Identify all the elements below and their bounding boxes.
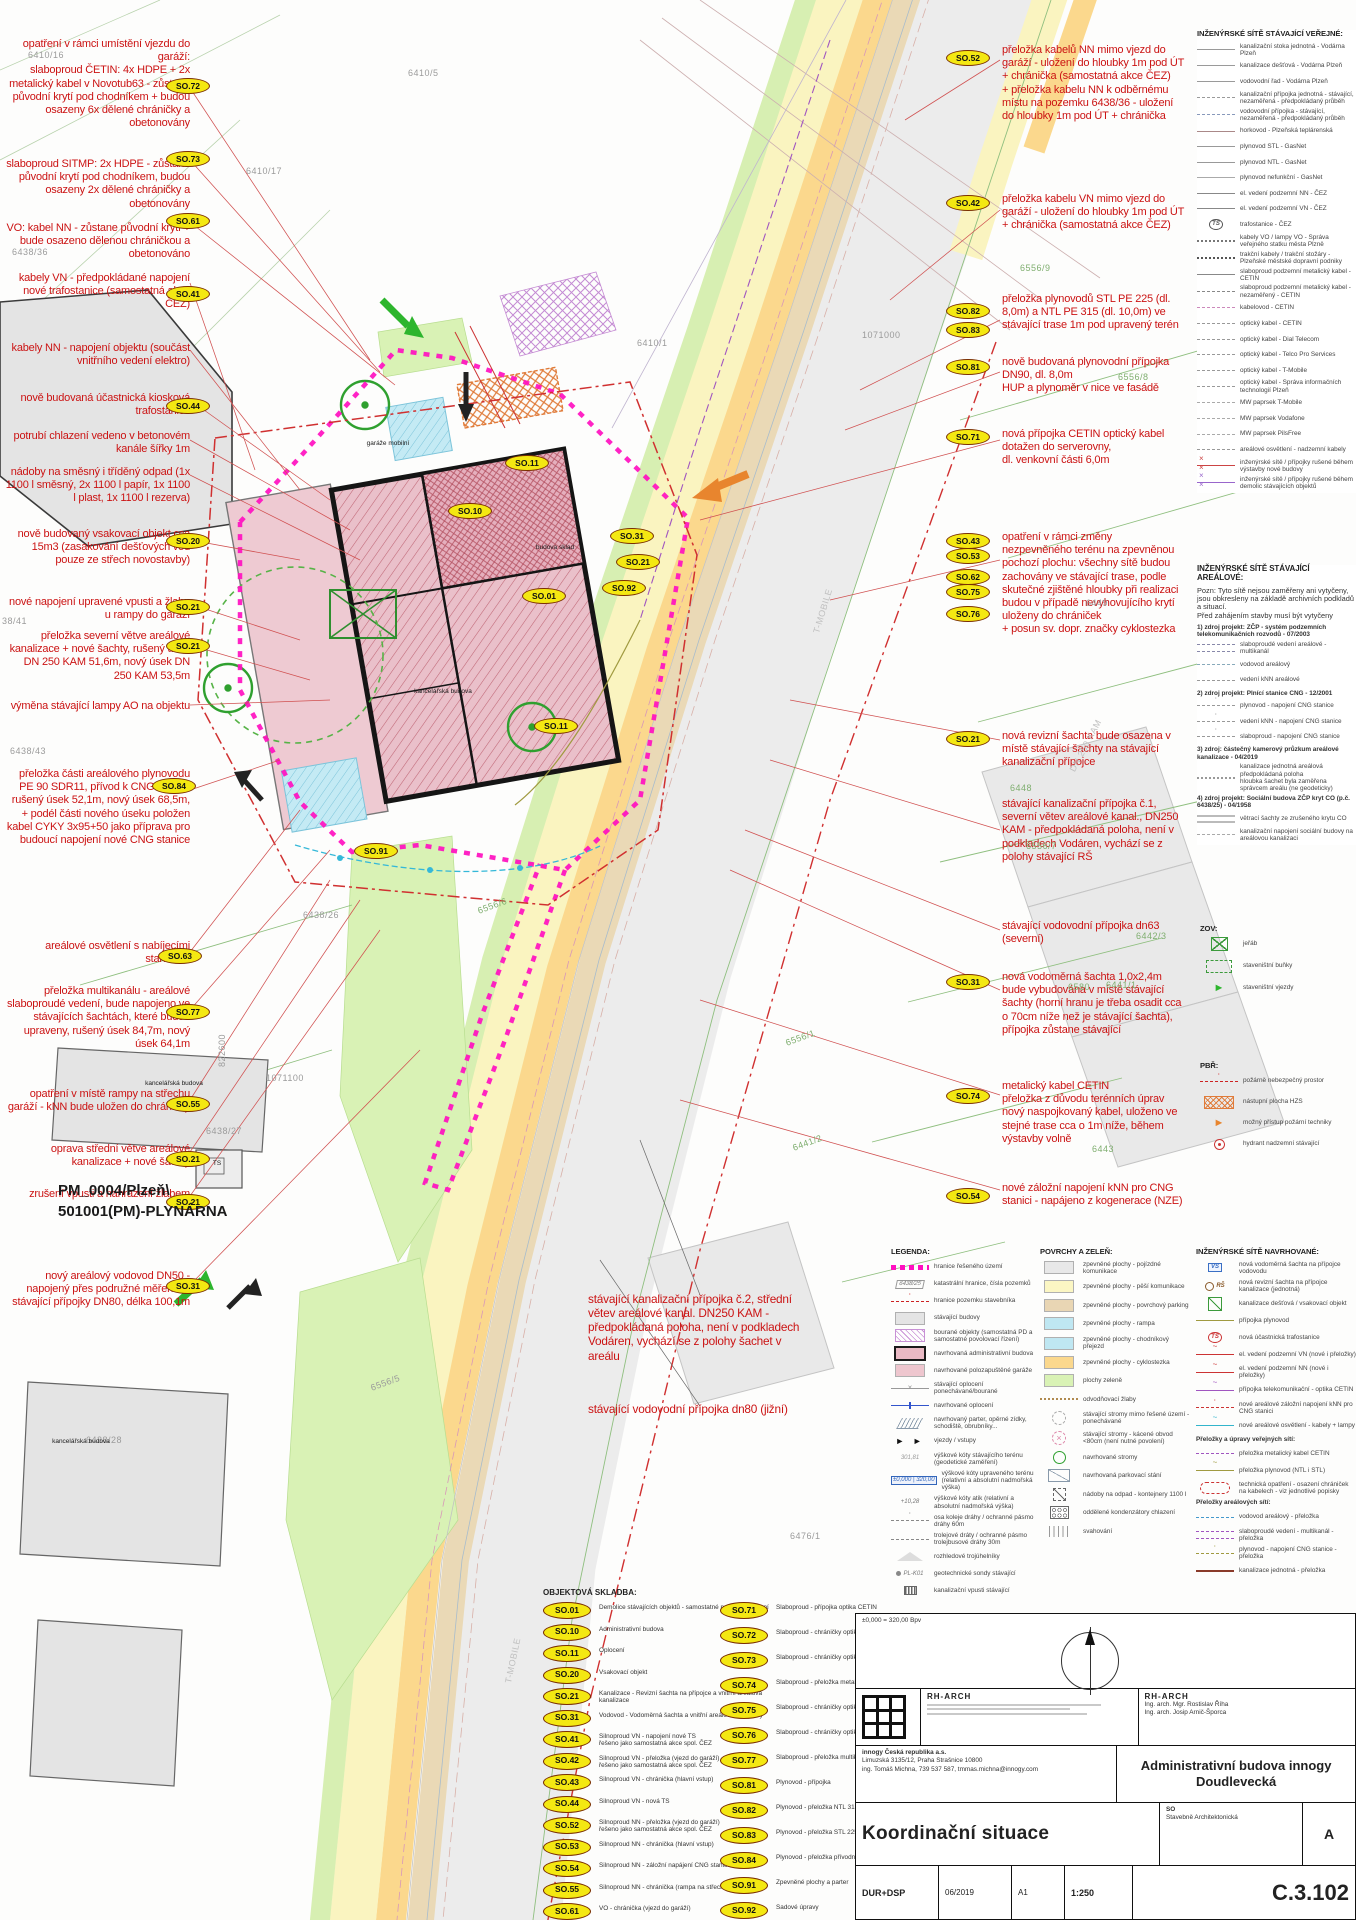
legend-item: navrhované polozapuštěné garáže bbox=[891, 1364, 1036, 1377]
legend-item: plynovod - napojení CNG stanice - přelož… bbox=[1196, 1546, 1356, 1560]
so-label: SO.82 bbox=[720, 1802, 768, 1819]
legend-symbol bbox=[1197, 187, 1235, 200]
scale: 1:250 bbox=[1071, 1888, 1094, 1898]
legend-item: slaboproud podzemní metalický kabel - CE… bbox=[1197, 268, 1356, 282]
legend-symbol bbox=[1196, 1314, 1234, 1327]
legend-item: hranice řešeného území bbox=[891, 1261, 1036, 1274]
legend-item: zpevněné plochy - rampa bbox=[1040, 1317, 1190, 1330]
so-label: SO.74 bbox=[720, 1677, 768, 1694]
legend-item: jeřáb bbox=[1200, 938, 1356, 951]
legend-item: hydrant nadzemní stávající bbox=[1200, 1138, 1356, 1151]
legend-symbol: TS bbox=[1197, 218, 1235, 231]
legend-item: inženýrské sítě / přípojky rušené během … bbox=[1197, 459, 1356, 473]
legend-item: optický kabel - T-Mobile bbox=[1197, 364, 1356, 377]
legend-symbol: VS bbox=[1196, 1261, 1234, 1274]
legend-item: TS nová účastnická trafostanice bbox=[1196, 1331, 1356, 1344]
so-label: SO.77 bbox=[720, 1752, 768, 1769]
legend-symbol bbox=[1197, 140, 1235, 153]
legend-item: optický kabel - Dial Telecom bbox=[1197, 333, 1356, 346]
legend-item: přípojka telekomunikační - optika CETIN bbox=[1196, 1384, 1356, 1397]
legend-symbol bbox=[1197, 380, 1235, 393]
so-label: SO.72 bbox=[720, 1627, 768, 1644]
legend-item: nástupní plocha HZS bbox=[1200, 1096, 1356, 1109]
legend-symbol bbox=[1197, 251, 1235, 264]
legend-item: slaboproud - napojení CNG stanice bbox=[1197, 730, 1356, 743]
legend-symbol bbox=[1040, 1261, 1078, 1274]
legend-item: plynovod - napojení CNG stanice bbox=[1197, 699, 1356, 712]
legend-symbol bbox=[1197, 285, 1235, 298]
legend-item: 301,81 výškové kóty stávajícího terénu (… bbox=[891, 1452, 1036, 1466]
legend-item: MW paprsek Vodafone bbox=[1197, 412, 1356, 425]
legend-item: osa koleje dráhy / ochranné pásmo dráhy … bbox=[891, 1514, 1036, 1528]
legend-symbol bbox=[1197, 828, 1235, 841]
legend-item: nádoby na odpad - kontejnery 1100 l bbox=[1040, 1488, 1190, 1501]
legend-title: INŽENÝRSKÉ SÍTĚ STÁVAJÍCÍ AREÁLOVÉ: bbox=[1197, 565, 1356, 583]
legend-symbol bbox=[1196, 1297, 1234, 1310]
so-label: SO.54 bbox=[543, 1860, 591, 1877]
firm-name-2: RH-ARCH bbox=[1145, 1692, 1350, 1701]
coordination-site-plan-sheet: opatření v rámci umístění vjezdu do gará… bbox=[0, 0, 1356, 1920]
legend-symbol bbox=[891, 1399, 929, 1412]
legend-item: kanalizace jednotná - přeložka bbox=[1196, 1564, 1356, 1577]
legend-symbol bbox=[1197, 674, 1235, 687]
legend-existing-public: INŽENÝRSKÉ SÍTĚ STÁVAJÍCÍ VEŘEJNÉ: kanal… bbox=[1197, 30, 1356, 493]
legend-item: svahování bbox=[1040, 1525, 1190, 1538]
drawing-number: C.3.102 bbox=[1272, 1880, 1349, 1906]
legend-symbol bbox=[891, 1312, 929, 1325]
legend-item: nové areálové osvětlení - kabely + lampy bbox=[1196, 1419, 1356, 1432]
legend-item: navrhované oplocení bbox=[891, 1399, 1036, 1412]
legend-item: vodovodní řad - Vodárna Plzeň bbox=[1197, 75, 1356, 88]
so-label: SO.43 bbox=[543, 1774, 591, 1791]
legend-symbol bbox=[1040, 1412, 1078, 1425]
legend-item: el. vedení podzemní NN (nové i přeložky) bbox=[1196, 1365, 1356, 1379]
objects-title: OBJEKTOVÁ SKLADBA: bbox=[543, 1588, 637, 1597]
legend-item: kanalizace jednotná areálová předpokláda… bbox=[1197, 763, 1356, 792]
legend-note: Pozn: Tyto sítě nejsou zaměřeny ani vyty… bbox=[1197, 587, 1356, 620]
legend-symbol bbox=[891, 1347, 929, 1360]
legend-symbol bbox=[1197, 396, 1235, 409]
legend-symbol bbox=[1197, 771, 1235, 784]
project-name-line1: Administrativní budova innogy bbox=[1123, 1758, 1349, 1774]
legend-symbol bbox=[891, 1514, 929, 1527]
legend-symbol bbox=[1197, 75, 1235, 88]
legend-symbol bbox=[1196, 1464, 1234, 1477]
legend-symbol bbox=[1040, 1488, 1078, 1501]
legend-symbol bbox=[1197, 642, 1235, 655]
investor-address: Limuzská 3135/12, Praha Strašnice 10800 bbox=[862, 1757, 1110, 1765]
legend-item: navrhovaný parter, opěrné zídky, schodiš… bbox=[891, 1416, 1036, 1430]
legend-symbol bbox=[1040, 1506, 1078, 1519]
legend-symbol bbox=[1197, 234, 1235, 247]
legend-item: hranice pozemku stavebníka bbox=[891, 1295, 1036, 1308]
legend-item: 6438/25 katastrální hranice, čísla pozem… bbox=[891, 1278, 1036, 1291]
legend-symbol bbox=[1197, 428, 1235, 441]
legend-symbol bbox=[891, 1295, 929, 1308]
legend-title: ZOV: bbox=[1200, 925, 1356, 934]
legend-item: RŠ nová revizní šachta na přípojce kanal… bbox=[1196, 1279, 1356, 1293]
legend-symbol bbox=[1040, 1374, 1078, 1387]
legend-symbol bbox=[1197, 125, 1235, 138]
north-arrow-icon bbox=[1061, 1632, 1119, 1690]
so-label: SO.53 bbox=[543, 1839, 591, 1856]
legend-item: navrhovaná parkovací stání bbox=[1040, 1469, 1190, 1482]
so-label: SO.73 bbox=[720, 1652, 768, 1669]
legend-item: +10,28 výškové kóty atik (relativní a ab… bbox=[891, 1495, 1036, 1509]
legend-symbol bbox=[1197, 812, 1235, 825]
legend-existing-area: INŽENÝRSKÉ SÍTĚ STÁVAJÍCÍ AREÁLOVÉ: Pozn… bbox=[1197, 565, 1356, 845]
date: 06/2019 bbox=[945, 1888, 974, 1897]
legend-item: vedení kNN areálové bbox=[1197, 674, 1356, 687]
legend-item: slaboproudé vedení areálové - multikanál bbox=[1197, 641, 1356, 655]
legend-symbol bbox=[1197, 364, 1235, 377]
legend-item: MW paprsek T-Mobile bbox=[1197, 396, 1356, 409]
so-label: SO.61 bbox=[543, 1903, 591, 1920]
legend-item: plynovod nefunkční - GasNet bbox=[1197, 171, 1356, 184]
legend-item: rozhledové trojúhelníky bbox=[891, 1550, 1036, 1563]
legend-symbol bbox=[1196, 1564, 1234, 1577]
legend-item: kanalizační přípojka jednotná - stávajíc… bbox=[1197, 91, 1356, 105]
legend-item: kabely VO / lampy VO - Správa veřejného … bbox=[1197, 234, 1356, 248]
legend-symbol bbox=[1197, 59, 1235, 72]
legend-symbol bbox=[1200, 982, 1238, 995]
legend-symbol bbox=[1040, 1469, 1078, 1482]
so-label: SO.44 bbox=[543, 1796, 591, 1813]
legend-item: kanalizační vpusti stávající bbox=[891, 1584, 1036, 1597]
legend-item: el. vedení podzemní VN (nové i přeložky) bbox=[1196, 1348, 1356, 1361]
so-label: SO.20 bbox=[543, 1667, 591, 1684]
legend-item: přeložka metalický kabel CETIN bbox=[1196, 1447, 1356, 1460]
drawing-title: Koordinační situace bbox=[862, 1823, 1049, 1845]
part-code: SO bbox=[1166, 1806, 1296, 1814]
legend-item: 1) zdroj projekt: ZČP - systém podzemníc… bbox=[1197, 624, 1356, 638]
legend-surfaces: POVRCHY A ZELEŇ: zpevněné plochy - pojíz… bbox=[1040, 1248, 1190, 1543]
legend-symbol bbox=[1197, 476, 1235, 489]
legend-item: kanalizace dešťová / vsakovací objekt bbox=[1196, 1297, 1356, 1310]
legend-item: el. vedení podzemní NN - ČEZ bbox=[1197, 187, 1356, 200]
legend-symbol bbox=[1197, 412, 1235, 425]
legend-item: ±0,000 | 320,00 výškové kóty upraveného … bbox=[891, 1470, 1036, 1492]
so-label: SO.31 bbox=[543, 1710, 591, 1727]
so-label: SO.83 bbox=[720, 1827, 768, 1844]
legend-symbol bbox=[1197, 658, 1235, 671]
so-label: SO.55 bbox=[543, 1882, 591, 1899]
legend-item: areálové osvětlení - nadzemní kabely bbox=[1197, 443, 1356, 456]
level-note: ±0,000 = 320,00 Bpv bbox=[862, 1617, 1349, 1625]
legend-symbol bbox=[1197, 108, 1235, 121]
legend-item: vedení kNN - napojení CNG stanice bbox=[1197, 715, 1356, 728]
legend-item: slaboproudé vedení - multikanál - přelož… bbox=[1196, 1528, 1356, 1542]
so-label: SO.11 bbox=[543, 1645, 591, 1662]
legend-item: stávající stromy mimo řešené území - pon… bbox=[1040, 1411, 1190, 1425]
profession: Stavebně Architektonická bbox=[1166, 1814, 1296, 1822]
investor-contact: ing. Tomáš Michna, 739 537 587, tmmas.mi… bbox=[862, 1766, 1110, 1774]
legend-symbol bbox=[891, 1417, 929, 1430]
legend-item: plynovod NTL - GasNet bbox=[1197, 156, 1356, 169]
legend-item: optický kabel - Správa informačních tech… bbox=[1197, 379, 1356, 393]
so-label: SO.91 bbox=[720, 1877, 768, 1894]
legend-symbol: ±0,000 | 320,00 bbox=[891, 1474, 937, 1487]
legend-symbol bbox=[1040, 1393, 1078, 1406]
plan-code: PM_0004/Plzeň\ 501001(PM)-PLYNÁRNA bbox=[58, 1180, 228, 1222]
legend-item: plochy zeleně bbox=[1040, 1374, 1190, 1387]
legend-item: navrhované stromy bbox=[1040, 1451, 1190, 1464]
legend-symbol bbox=[891, 1382, 929, 1395]
paper-format: A1 bbox=[1018, 1888, 1028, 1897]
legend-symbol bbox=[1040, 1280, 1078, 1293]
legend-item: technická opatření - osazení chrániček n… bbox=[1196, 1481, 1356, 1495]
legend-item: 4) zdroj projekt: Sociální budova ZČP kr… bbox=[1197, 795, 1356, 809]
legend-symbol bbox=[1197, 268, 1235, 281]
legend-symbol bbox=[1200, 1138, 1238, 1151]
legend-symbol bbox=[1200, 1075, 1238, 1088]
so-label: SO.01 bbox=[543, 1602, 591, 1619]
legend-symbol: +10,28 bbox=[891, 1496, 929, 1509]
so-label: SO.52 bbox=[543, 1817, 591, 1834]
legend-symbol bbox=[1196, 1528, 1234, 1541]
so-label: SO.71 bbox=[720, 1602, 768, 1619]
legend-symbol bbox=[1197, 730, 1235, 743]
legend-item: zpevněné plochy - pěší komunikace bbox=[1040, 1280, 1190, 1293]
legend-symbol bbox=[891, 1550, 929, 1563]
legend-symbol bbox=[1196, 1366, 1234, 1379]
legend-symbol bbox=[1197, 156, 1235, 169]
so-label: SO.81 bbox=[720, 1777, 768, 1794]
legend-item: optický kabel - Telco Pro Services bbox=[1197, 348, 1356, 361]
legend-title: POVRCHY A ZELEŇ: bbox=[1040, 1248, 1190, 1257]
legend-symbol bbox=[1200, 960, 1238, 973]
legend-symbol bbox=[891, 1435, 929, 1448]
legend-main: LEGENDA: hranice řešeného území 6438/25 … bbox=[891, 1248, 1036, 1601]
legend-symbol bbox=[1040, 1432, 1078, 1445]
legend-item: navrhovaná administrativní budova bbox=[891, 1347, 1036, 1360]
firm-name: RH-ARCH bbox=[927, 1692, 1132, 1701]
legend-item: bourané objekty (samostatná PD a samosta… bbox=[891, 1329, 1036, 1343]
legend-symbol bbox=[891, 1261, 929, 1274]
legend-item: Přeložky areálových sítí: bbox=[1196, 1499, 1356, 1506]
legend-item: stávající oplocení ponechávané/bourané bbox=[891, 1381, 1036, 1395]
legend-item: vodovodní přípojka - stávající, nezaměře… bbox=[1197, 108, 1356, 122]
legend-title: PBŘ: bbox=[1200, 1062, 1356, 1071]
legend-symbol bbox=[1040, 1299, 1078, 1312]
legend-item: nové areálové záložní napojení kNN pro C… bbox=[1196, 1401, 1356, 1415]
legend-item: horkovod - Plzeňská teplárenská bbox=[1197, 125, 1356, 138]
legend-item: stávající budovy bbox=[891, 1312, 1036, 1325]
legend-symbol: RŠ bbox=[1196, 1280, 1234, 1293]
so-label: SO.21 bbox=[543, 1688, 591, 1705]
legend-item: el. vedení podzemní VN - ČEZ bbox=[1197, 202, 1356, 215]
legend-item: vodovod areálový bbox=[1197, 658, 1356, 671]
revision: A bbox=[1324, 1826, 1334, 1842]
legend-item: zpevněné plochy - pojízdné komunikace bbox=[1040, 1261, 1190, 1275]
legend-item: VS nová vodoměrná šachta na přípojce vod… bbox=[1196, 1261, 1356, 1275]
legend-item: vjezdy / vstupy bbox=[891, 1435, 1036, 1448]
legend-item: zpevněné plochy - chodníkový přejezd bbox=[1040, 1336, 1190, 1350]
legend-item: požárně nebezpečný prostor bbox=[1200, 1075, 1356, 1088]
legend-item: větrací šachty ze zrušeného krytu CO bbox=[1197, 812, 1356, 825]
legend-item: možný přístup požární techniky bbox=[1200, 1117, 1356, 1130]
legend-item: optický kabel - CETIN bbox=[1197, 317, 1356, 330]
title-block: ±0,000 = 320,00 Bpv RH-ARCH RH-ARCH Ing.… bbox=[855, 1613, 1356, 1920]
legend-title: INŽENÝRSKÉ SÍTĚ STÁVAJÍCÍ VEŘEJNÉ: bbox=[1197, 30, 1356, 39]
legend-symbol bbox=[1196, 1547, 1234, 1560]
legend-item: 2) zdroj projekt: Plnící stanice CNG - 1… bbox=[1197, 690, 1356, 697]
legend-item: Přeložky a úpravy veřejných sítí: bbox=[1196, 1436, 1356, 1443]
legend-item: oddělené kondenzátory chlazení bbox=[1040, 1506, 1190, 1519]
so-label: SO.76 bbox=[720, 1727, 768, 1744]
legend-symbol bbox=[1040, 1356, 1078, 1369]
legend-item: 3) zdroj: částečný kamerový průzkum areá… bbox=[1197, 746, 1356, 760]
legend-symbol bbox=[1200, 938, 1238, 951]
legend-symbol bbox=[1040, 1337, 1078, 1350]
legend-item: odvodňovací žlaby bbox=[1040, 1393, 1190, 1406]
legend-item: TS trafostanice - ČEZ bbox=[1197, 218, 1356, 231]
legend-item: plynovod STL - GasNet bbox=[1197, 140, 1356, 153]
legend-symbol bbox=[891, 1329, 929, 1342]
legend-symbol: PL-K01 bbox=[891, 1567, 929, 1580]
rh-arch-logo bbox=[862, 1695, 906, 1739]
legend-item: trakční kabely / trakční stožáry - Plzeň… bbox=[1197, 251, 1356, 265]
so-label: SO.75 bbox=[720, 1702, 768, 1719]
legend-item: kanalizační napojení sociální budovy na … bbox=[1197, 828, 1356, 842]
investor-name: innogy Česká republika a.s. bbox=[862, 1749, 1110, 1757]
legend-item: inženýrské sítě / přípojky rušené během … bbox=[1197, 476, 1356, 490]
so-label: SO.10 bbox=[543, 1624, 591, 1641]
legend-symbol bbox=[1040, 1317, 1078, 1330]
so-label: SO.42 bbox=[543, 1753, 591, 1770]
legend-symbol bbox=[1196, 1511, 1234, 1524]
legend-item: zpevněné plochy - povrchový parking bbox=[1040, 1299, 1190, 1312]
legend-symbol bbox=[1200, 1117, 1238, 1130]
legend-item: přeložka plynovod (NTL i STL) bbox=[1196, 1464, 1356, 1477]
legend-symbol bbox=[1200, 1096, 1238, 1109]
legend-symbol bbox=[1197, 171, 1235, 184]
legend-proposed: INŽENÝRSKÉ SÍTĚ NAVRHOVANÉ: VS nová vodo… bbox=[1196, 1248, 1356, 1581]
legend-symbol bbox=[1197, 348, 1235, 361]
so-label: SO.84 bbox=[720, 1852, 768, 1869]
legend-item: stávající stromy - kácené obvod <80cm (n… bbox=[1040, 1431, 1190, 1445]
architect-2: Ing. arch. Josip Arnič-Šporca bbox=[1145, 1709, 1350, 1717]
legend-symbol bbox=[1197, 317, 1235, 330]
legend-item: slaboproud podzemní metalický kabel - ne… bbox=[1197, 284, 1356, 298]
legend-symbol bbox=[1197, 333, 1235, 346]
legend-symbol bbox=[891, 1533, 929, 1546]
legend-symbol: 301,81 bbox=[891, 1452, 929, 1465]
legend-symbol bbox=[1197, 43, 1235, 56]
legend-symbol bbox=[1196, 1419, 1234, 1432]
legend-zov: ZOV: jeřáb staveništní buňky staveništní… bbox=[1200, 925, 1356, 1004]
so-label: SO.41 bbox=[543, 1731, 591, 1748]
legend-symbol bbox=[891, 1584, 929, 1597]
legend-item: zpevněné plochy - cyklostezka bbox=[1040, 1356, 1190, 1369]
legend-item: PL-K01 geotechnické sondy stávající bbox=[891, 1567, 1036, 1580]
project-name-line2: Doudlevecká bbox=[1123, 1774, 1349, 1790]
legend-item: přípojka plynovod bbox=[1196, 1314, 1356, 1327]
legend-symbol bbox=[1196, 1482, 1234, 1495]
legend-title: LEGENDA: bbox=[891, 1248, 1036, 1257]
legend-title: INŽENÝRSKÉ SÍTĚ NAVRHOVANÉ: bbox=[1196, 1248, 1356, 1257]
legend-pbr: PBŘ: požárně nebezpečný prostor nástupní… bbox=[1200, 1062, 1356, 1159]
legend-item: MW paprsek PilsFree bbox=[1197, 428, 1356, 441]
legend-item: kanalizační stoka jednotná - Vodárna Plz… bbox=[1197, 43, 1356, 57]
legend-symbol bbox=[1197, 301, 1235, 314]
legend-item: staveništní vjezdy bbox=[1200, 982, 1356, 995]
stage: DUR+DSP bbox=[862, 1888, 905, 1898]
legend-item: trolejové dráty / ochranné pásmo trolejb… bbox=[891, 1532, 1036, 1546]
legend-item: vodovod areálový - přeložka bbox=[1196, 1511, 1356, 1524]
legend-symbol: 6438/25 bbox=[891, 1278, 929, 1291]
legend-symbol bbox=[1196, 1384, 1234, 1397]
legend-symbol bbox=[1040, 1451, 1078, 1464]
legend-item: kabelovod - CETIN bbox=[1197, 301, 1356, 314]
legend-symbol bbox=[891, 1364, 929, 1377]
so-label: SO.92 bbox=[720, 1902, 768, 1919]
legend-symbol bbox=[1197, 202, 1235, 215]
legend-symbol bbox=[1040, 1525, 1078, 1538]
legend-item: staveništní buňky bbox=[1200, 960, 1356, 973]
legend-item: kanalizace dešťová - Vodárna Plzeň bbox=[1197, 59, 1356, 72]
legend-symbol bbox=[1197, 91, 1235, 104]
